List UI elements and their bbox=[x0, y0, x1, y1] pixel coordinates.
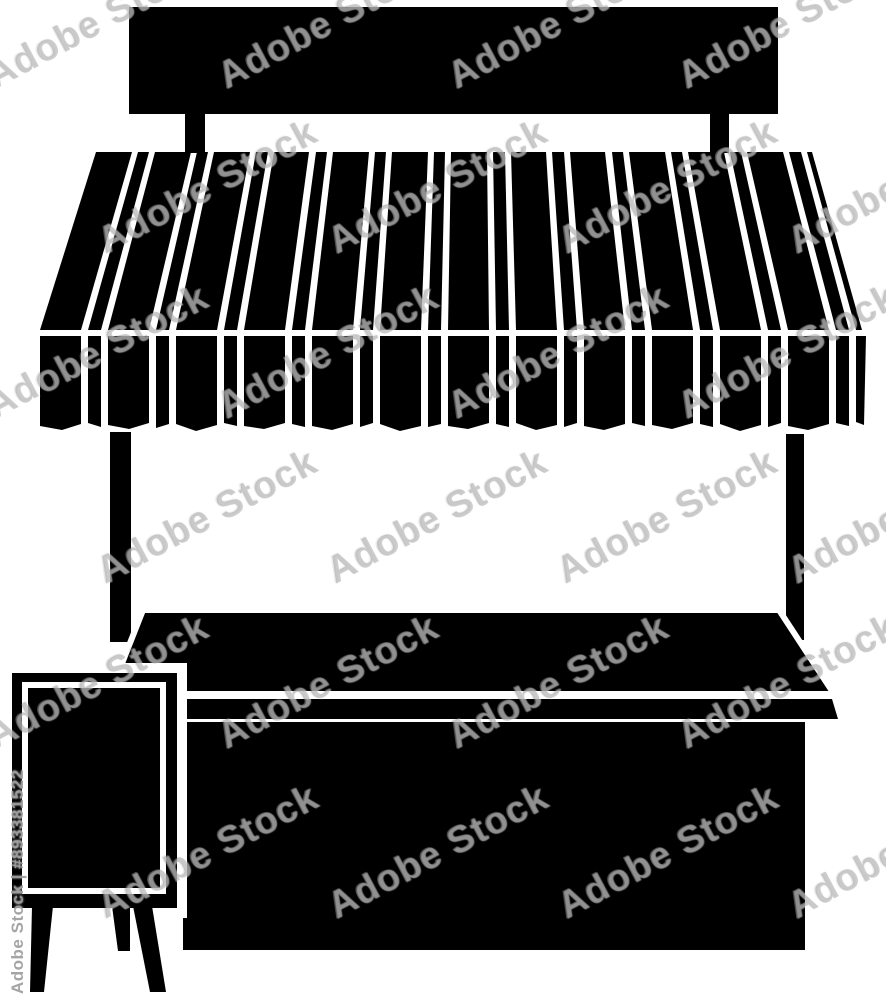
chalkboard-easel bbox=[7, 668, 182, 992]
stall-leg-left bbox=[110, 432, 131, 642]
stock-image-canvas: Adobe Stock Adobe Stock Adobe Stock Adob… bbox=[0, 0, 886, 1000]
counter-front-edge bbox=[180, 699, 838, 719]
easel-leg-left bbox=[30, 906, 53, 992]
easel-leg-right bbox=[133, 906, 166, 992]
market-stall-illustration bbox=[0, 0, 886, 1000]
sign-post-left bbox=[185, 114, 205, 153]
sign-post-right bbox=[710, 114, 729, 153]
stall-leg-right bbox=[786, 434, 804, 640]
counter-tabletop bbox=[110, 610, 834, 694]
awning-canopy bbox=[40, 152, 862, 330]
watermark-asset-id: Adobe Stock | #893381522 bbox=[8, 769, 28, 994]
awning-valance bbox=[40, 336, 866, 431]
sign-board bbox=[129, 7, 778, 114]
easel-leg-middle bbox=[112, 906, 130, 951]
counter-front-panel bbox=[183, 722, 805, 950]
easel-board bbox=[7, 668, 182, 913]
counter bbox=[110, 610, 834, 694]
stall-silhouette bbox=[7, 7, 866, 992]
